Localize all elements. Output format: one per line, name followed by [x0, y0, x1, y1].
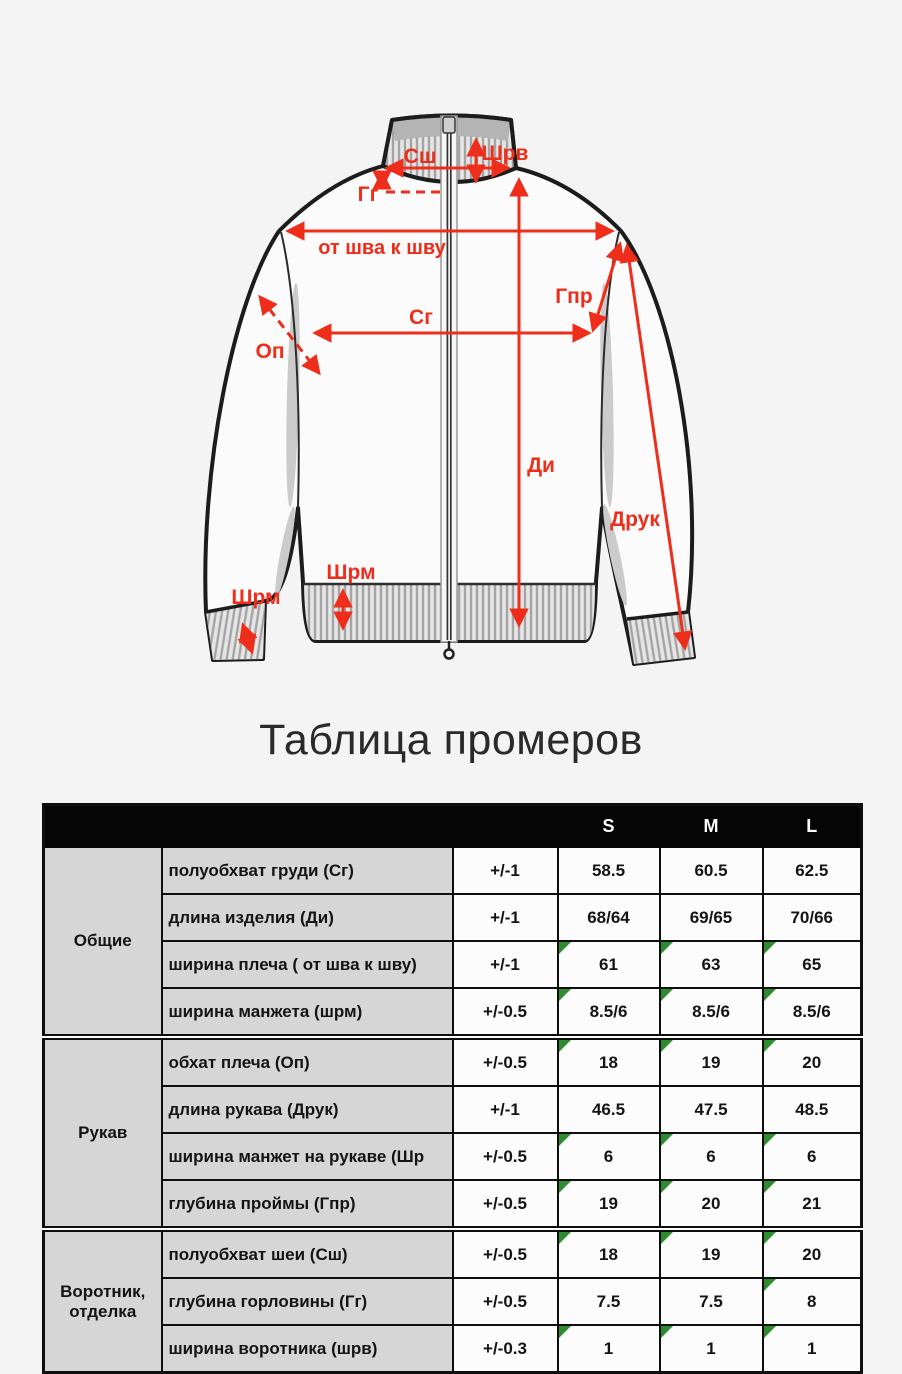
value-cell: 68/64 — [558, 894, 660, 941]
comment-marker — [559, 1134, 571, 1146]
comment-marker — [764, 989, 776, 1001]
value-cell: 18 — [558, 1229, 660, 1278]
header-size-L: L — [763, 805, 862, 848]
measurement-label-cell: полуобхват шеи (Сш) — [162, 1229, 453, 1278]
tolerance-cell: +/-0.5 — [453, 1229, 558, 1278]
tolerance-cell: +/-0.5 — [453, 988, 558, 1037]
table-row: Воротник, отделкаполуобхват шеи (Сш)+/-0… — [44, 1229, 862, 1278]
value-cell: 58.5 — [558, 847, 660, 894]
value-cell: 19 — [660, 1229, 763, 1278]
length-label: Ди — [527, 454, 555, 477]
value-cell: 20 — [763, 1229, 862, 1278]
comment-marker — [764, 1134, 776, 1146]
measurement-label-cell: обхат плеча (Оп) — [162, 1037, 453, 1086]
comment-marker — [764, 1279, 776, 1291]
jacket-measurement-diagram: Сш Шрв Гг от шва к шву Сг Оп Ди Гпр Друк… — [0, 0, 902, 700]
value-cell: 20 — [660, 1180, 763, 1229]
table-row: ширина воротника (шрв)+/-0.3111 — [44, 1325, 862, 1373]
value-cell: 18 — [558, 1037, 660, 1086]
table-row: ширина плеча ( от шва к шву)+/-1616365 — [44, 941, 862, 988]
table-row: глубина горловины (Гг)+/-0.57.57.58 — [44, 1278, 862, 1325]
value-cell: 1 — [558, 1325, 660, 1373]
comment-marker — [661, 1232, 673, 1244]
group-cell: Общие — [44, 847, 162, 1037]
group-cell: Воротник, отделка — [44, 1229, 162, 1373]
size-table-body: Общиеполуобхват груди (Сг)+/-158.560.562… — [44, 847, 862, 1373]
table-row: Рукавобхат плеча (Оп)+/-0.5181920 — [44, 1037, 862, 1086]
seam-to-seam-label: от шва к шву — [318, 237, 446, 259]
value-cell: 20 — [763, 1037, 862, 1086]
value-cell: 7.5 — [558, 1278, 660, 1325]
comment-marker — [764, 1181, 776, 1193]
neck-width-label: Сш — [404, 145, 437, 168]
value-cell: 8.5/6 — [558, 988, 660, 1037]
left-cuff — [206, 601, 265, 660]
header-size-M: M — [660, 805, 763, 848]
table-row: ширина манжета (шрм)+/-0.58.5/68.5/68.5/… — [44, 988, 862, 1037]
value-cell: 61 — [558, 941, 660, 988]
measurement-label-cell: полуобхват груди (Сг) — [162, 847, 453, 894]
value-cell: 8.5/6 — [763, 988, 862, 1037]
comment-marker — [764, 1232, 776, 1244]
size-table-header: SML — [44, 805, 862, 848]
header-empty-label — [162, 805, 453, 848]
comment-marker — [661, 1040, 673, 1052]
tolerance-cell: +/-0.3 — [453, 1325, 558, 1373]
collar-height-label: Шрв — [482, 142, 529, 165]
header-row: SML — [44, 805, 862, 848]
value-cell: 1 — [660, 1325, 763, 1373]
value-cell: 19 — [660, 1037, 763, 1086]
tolerance-cell: +/-0.5 — [453, 1278, 558, 1325]
measurement-label-cell: ширина манжет на рукаве (Шр — [162, 1133, 453, 1180]
tolerance-cell: +/-0.5 — [453, 1133, 558, 1180]
comment-marker — [661, 1326, 673, 1338]
value-cell: 46.5 — [558, 1086, 660, 1133]
page-title: Таблица промеров — [0, 716, 902, 765]
hem-cuff-label: Шрм — [326, 561, 375, 584]
value-cell: 1 — [763, 1325, 862, 1373]
measurement-label-cell: ширина плеча ( от шва к шву) — [162, 941, 453, 988]
value-cell: 8.5/6 — [660, 988, 763, 1037]
comment-marker — [661, 942, 673, 954]
comment-marker — [764, 1326, 776, 1338]
table-row: ширина манжет на рукаве (Шр+/-0.5666 — [44, 1133, 862, 1180]
table-row: глубина проймы (Гпр)+/-0.5192021 — [44, 1180, 862, 1229]
value-cell: 48.5 — [763, 1086, 862, 1133]
comment-marker — [661, 1134, 673, 1146]
measurement-label-cell: ширина манжета (шрм) — [162, 988, 453, 1037]
value-cell: 7.5 — [660, 1278, 763, 1325]
tolerance-cell: +/-1 — [453, 1086, 558, 1133]
comment-marker — [559, 1181, 571, 1193]
comment-marker — [559, 1326, 571, 1338]
comment-marker — [559, 1232, 571, 1244]
chest-label: Сг — [409, 306, 433, 329]
value-cell: 65 — [763, 941, 862, 988]
comment-marker — [661, 989, 673, 1001]
comment-marker — [559, 942, 571, 954]
comment-marker — [764, 1040, 776, 1052]
value-cell: 47.5 — [660, 1086, 763, 1133]
header-empty-tolerance — [453, 805, 558, 848]
comment-marker — [764, 942, 776, 954]
value-cell: 8 — [763, 1278, 862, 1325]
shoulder-girth-label: Оп — [255, 340, 284, 363]
measurement-label-cell: длина изделия (Ди) — [162, 894, 453, 941]
tolerance-cell: +/-1 — [453, 847, 558, 894]
value-cell: 70/66 — [763, 894, 862, 941]
value-cell: 6 — [660, 1133, 763, 1180]
size-table-container: SML Общиеполуобхват груди (Сг)+/-158.560… — [42, 803, 863, 1374]
tolerance-cell: +/-0.5 — [453, 1180, 558, 1229]
value-cell: 6 — [558, 1133, 660, 1180]
measurement-label-cell: глубина проймы (Гпр) — [162, 1180, 453, 1229]
armhole-depth-label: Гпр — [555, 285, 592, 308]
measurement-label-cell: длина рукава (Друк) — [162, 1086, 453, 1133]
sleeve-length-label: Друк — [610, 508, 660, 531]
header-size-S: S — [558, 805, 660, 848]
size-table: SML Общиеполуобхват груди (Сг)+/-158.560… — [42, 803, 863, 1374]
table-row: длина изделия (Ди)+/-168/6469/6570/66 — [44, 894, 862, 941]
value-cell: 69/65 — [660, 894, 763, 941]
size-chart-page: { "title": "Таблица промеров", "diagram"… — [0, 0, 902, 1350]
neck-depth-label: Гг — [358, 183, 379, 206]
value-cell: 62.5 — [763, 847, 862, 894]
comment-marker — [661, 1181, 673, 1193]
value-cell: 19 — [558, 1180, 660, 1229]
tolerance-cell: +/-1 — [453, 894, 558, 941]
tolerance-cell: +/-1 — [453, 941, 558, 988]
value-cell: 60.5 — [660, 847, 763, 894]
comment-marker — [559, 989, 571, 1001]
measurement-label-cell: глубина горловины (Гг) — [162, 1278, 453, 1325]
value-cell: 6 — [763, 1133, 862, 1180]
sleeve-cuff-label: Шрм — [231, 586, 280, 609]
comment-marker — [559, 1040, 571, 1052]
group-cell: Рукав — [44, 1037, 162, 1229]
value-cell: 21 — [763, 1180, 862, 1229]
value-cell: 63 — [660, 941, 763, 988]
header-empty-group — [44, 805, 162, 848]
table-row: длина рукава (Друк)+/-146.547.548.5 — [44, 1086, 862, 1133]
tolerance-cell: +/-0.5 — [453, 1037, 558, 1086]
zipper — [441, 116, 457, 659]
table-row: Общиеполуобхват груди (Сг)+/-158.560.562… — [44, 847, 862, 894]
measurement-label-cell: ширина воротника (шрв) — [162, 1325, 453, 1373]
